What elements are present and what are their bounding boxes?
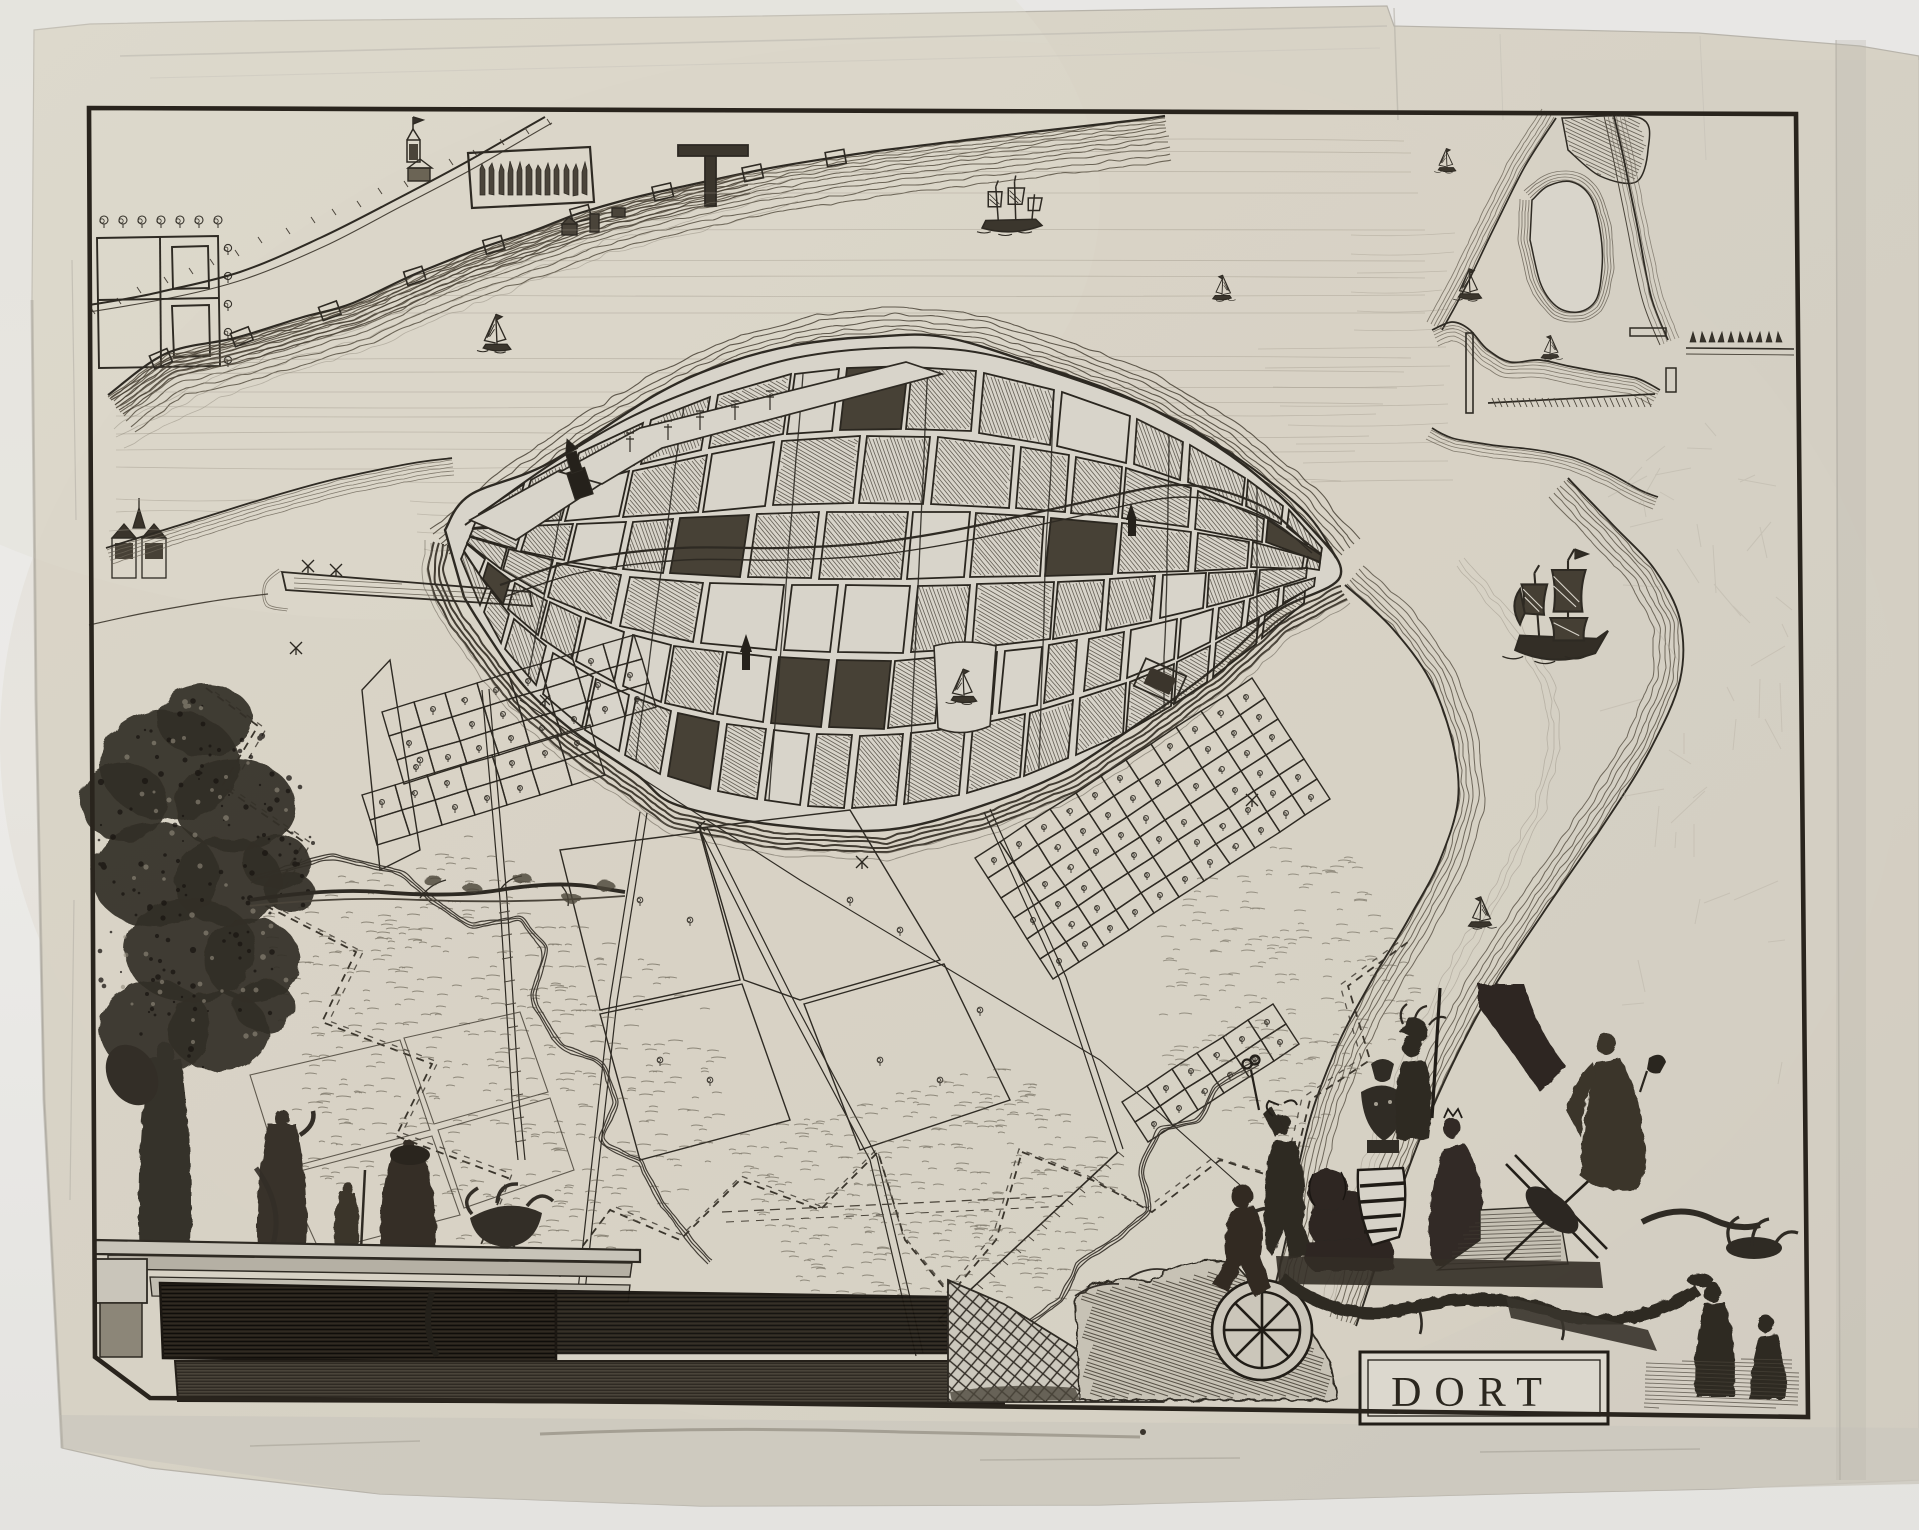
svg-text:DORT: DORT	[1391, 1370, 1555, 1416]
